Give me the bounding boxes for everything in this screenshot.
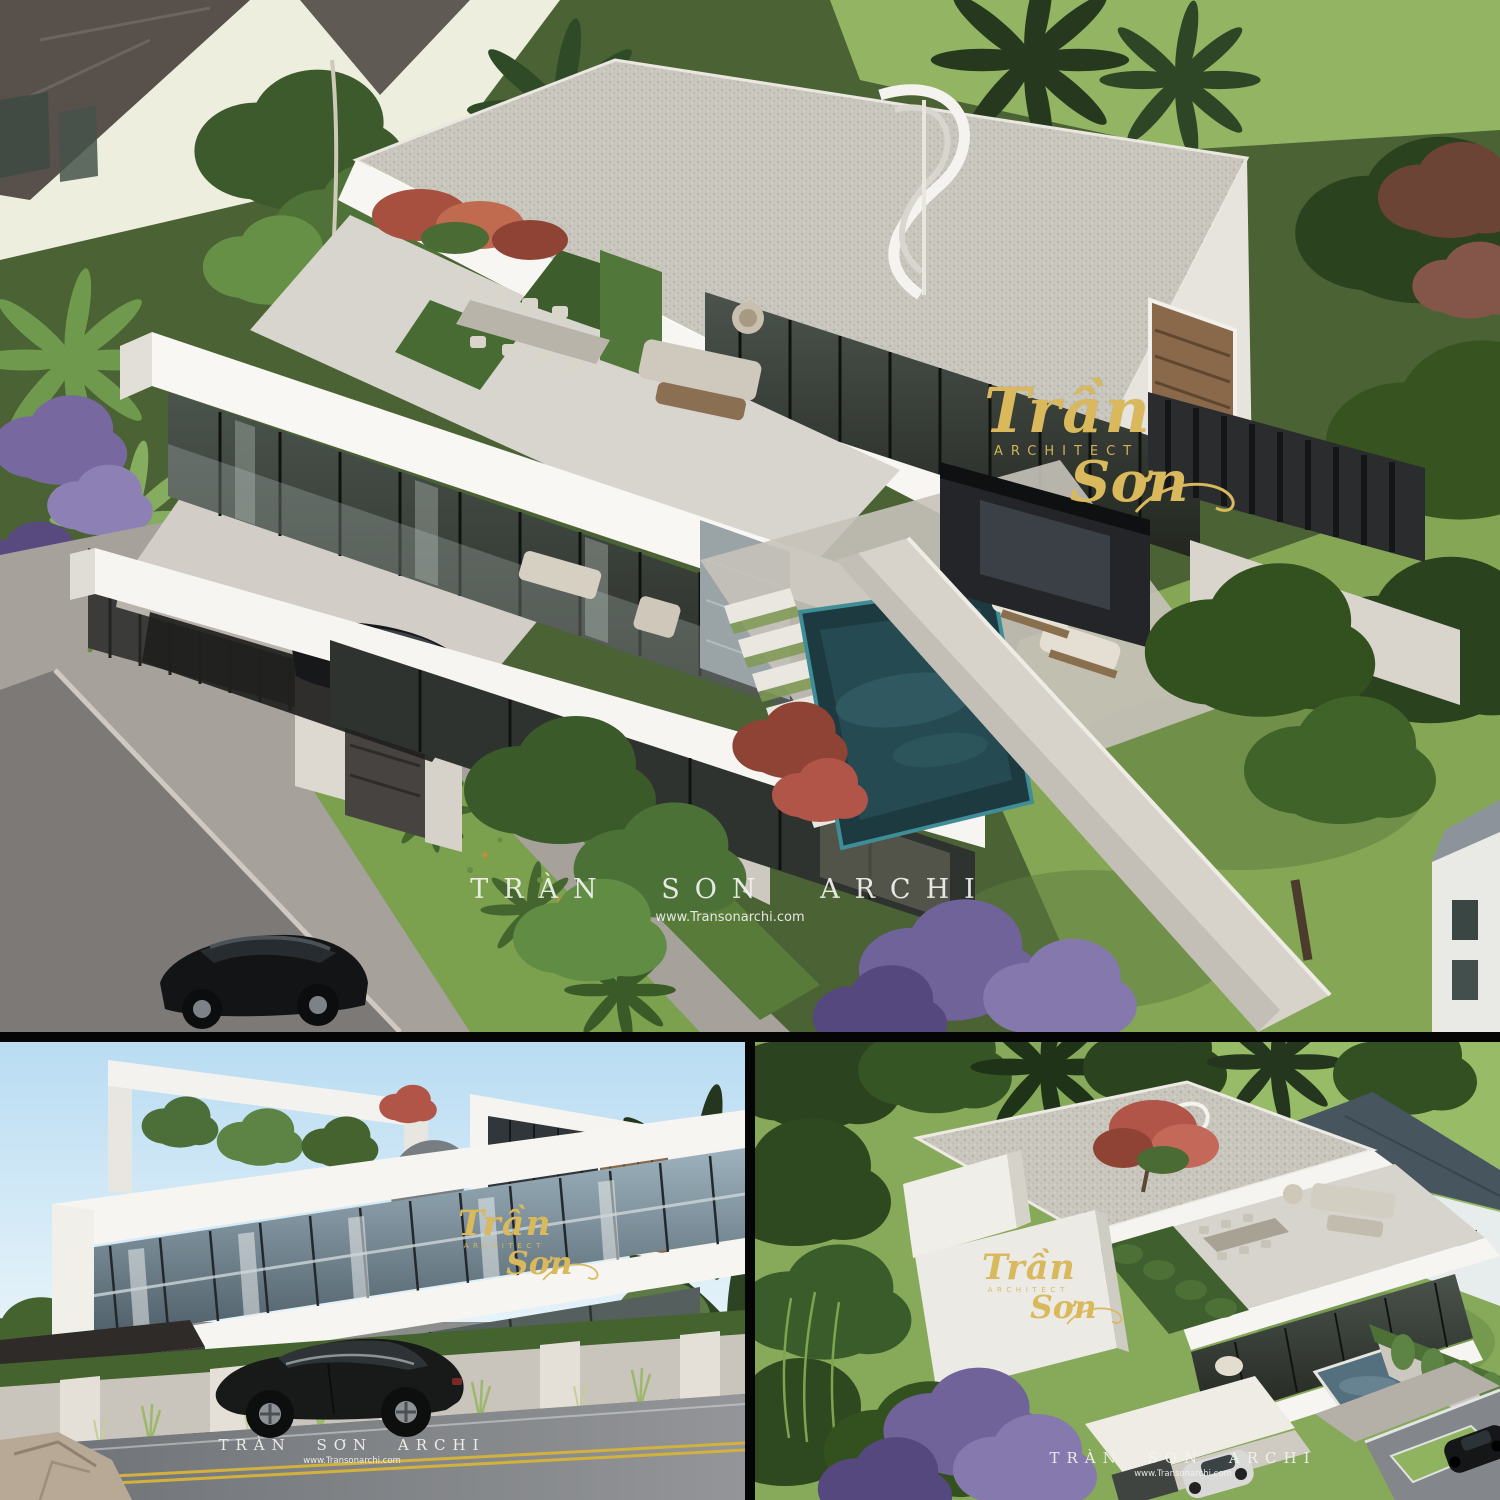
panel-rear-aerial-view	[755, 1042, 1500, 1500]
panel-aerial-view	[0, 0, 1500, 1032]
rear-villa-render	[755, 1042, 1500, 1500]
panel-street-view	[0, 1042, 745, 1500]
aerial-villa-render	[0, 0, 1500, 1032]
street-villa-render	[0, 1042, 745, 1500]
architecture-render-collage: { "brand": { "logo_script_top": "Trần", …	[0, 0, 1500, 1500]
hanging-chair	[1215, 1356, 1243, 1376]
